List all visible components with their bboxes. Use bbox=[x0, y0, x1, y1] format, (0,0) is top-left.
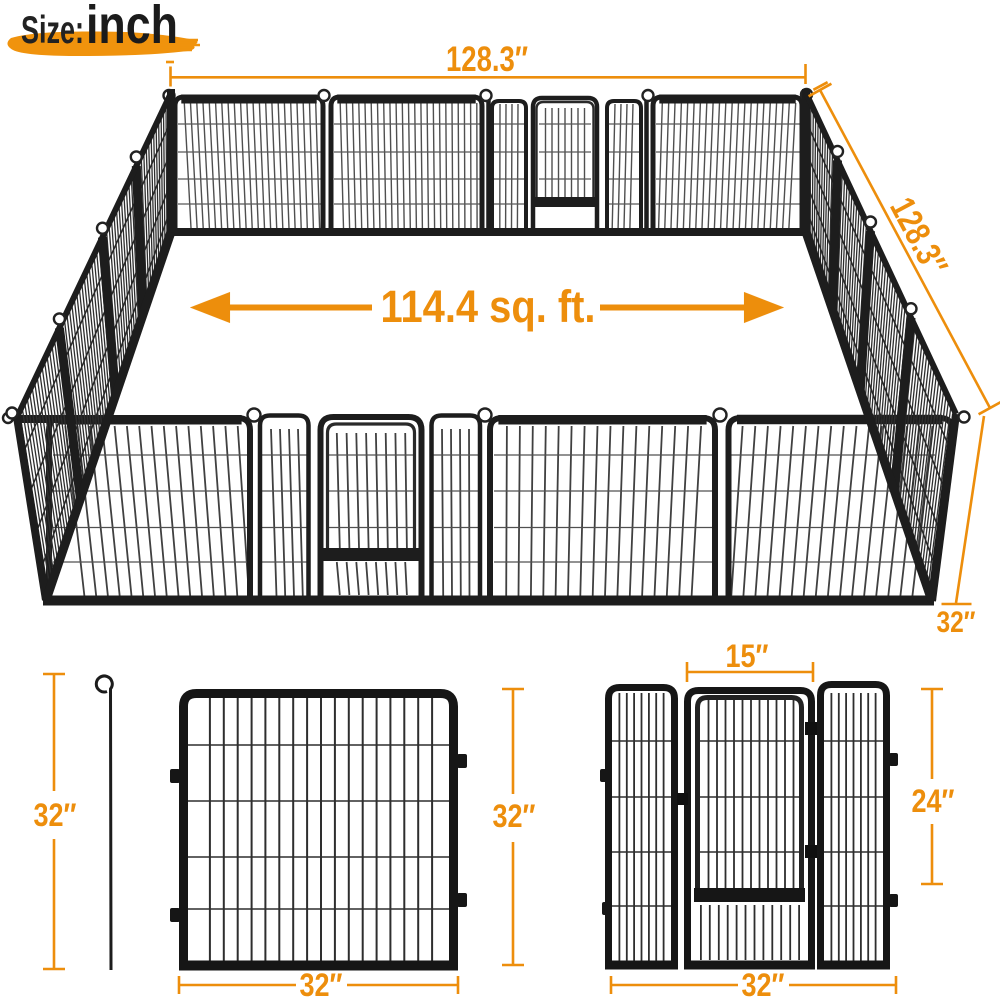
svg-text:32″: 32″ bbox=[937, 606, 976, 639]
svg-text:32″: 32″ bbox=[300, 967, 343, 1000]
svg-text:15″: 15″ bbox=[726, 638, 769, 674]
svg-text:24″: 24″ bbox=[912, 783, 955, 819]
svg-text:32″: 32″ bbox=[493, 798, 536, 834]
svg-text:128.3″: 128.3″ bbox=[446, 40, 528, 79]
svg-text:114.4 sq. ft.: 114.4 sq. ft. bbox=[381, 281, 596, 332]
svg-text:32″: 32″ bbox=[34, 797, 77, 833]
svg-text:32″: 32″ bbox=[742, 967, 785, 1000]
svg-text:Size:: Size: bbox=[21, 9, 84, 52]
svg-text:inch: inch bbox=[86, 0, 178, 55]
